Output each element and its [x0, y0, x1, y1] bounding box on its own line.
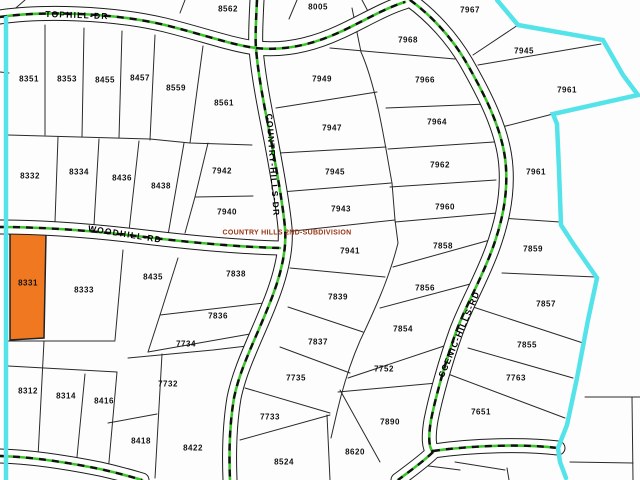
parcel-lines-layer: [0, 0, 640, 480]
boundary-lines-layer: [6, 0, 638, 480]
map-canvas[interactable]: 8562800579678351835384558457855985617968…: [0, 0, 640, 480]
road-fill-layer: [0, 0, 558, 480]
boundary-right: [497, 0, 638, 478]
parcel-map-svg: [0, 0, 640, 480]
highlighted-parcel-8331[interactable]: [10, 233, 46, 340]
